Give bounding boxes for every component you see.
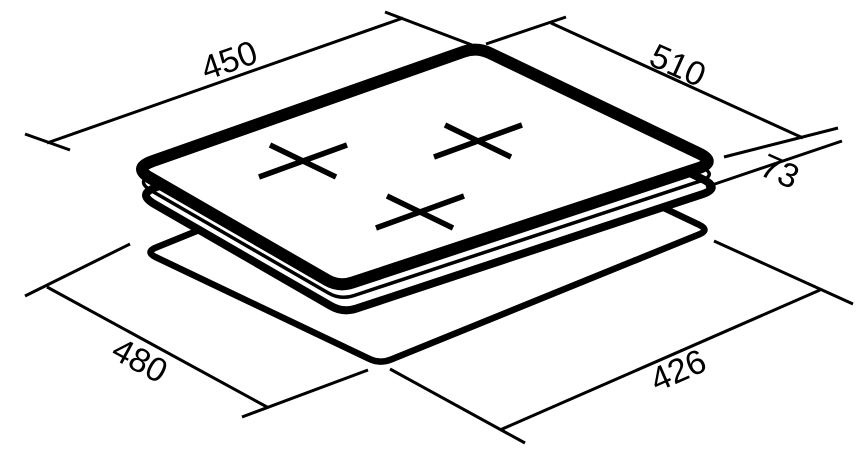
- hob-dimension-diagram: 450 510 73 480 426: [0, 0, 867, 460]
- extension-line: [486, 17, 566, 44]
- dimension-label-426: 426: [645, 342, 712, 400]
- dimension-label-73: 73: [755, 147, 805, 197]
- dimension-label-450: 450: [196, 34, 262, 89]
- extension-line: [385, 12, 472, 45]
- dimension-label-510: 510: [644, 37, 711, 95]
- extension-line: [25, 244, 130, 296]
- technical-drawing-page: 450 510 73 480 426: [0, 0, 867, 460]
- extension-line: [390, 369, 525, 443]
- extension-line: [242, 370, 368, 417]
- extension-line: [714, 241, 853, 304]
- dimension-line-bottom-left: [47, 287, 267, 407]
- dimension-label-480: 480: [106, 331, 174, 391]
